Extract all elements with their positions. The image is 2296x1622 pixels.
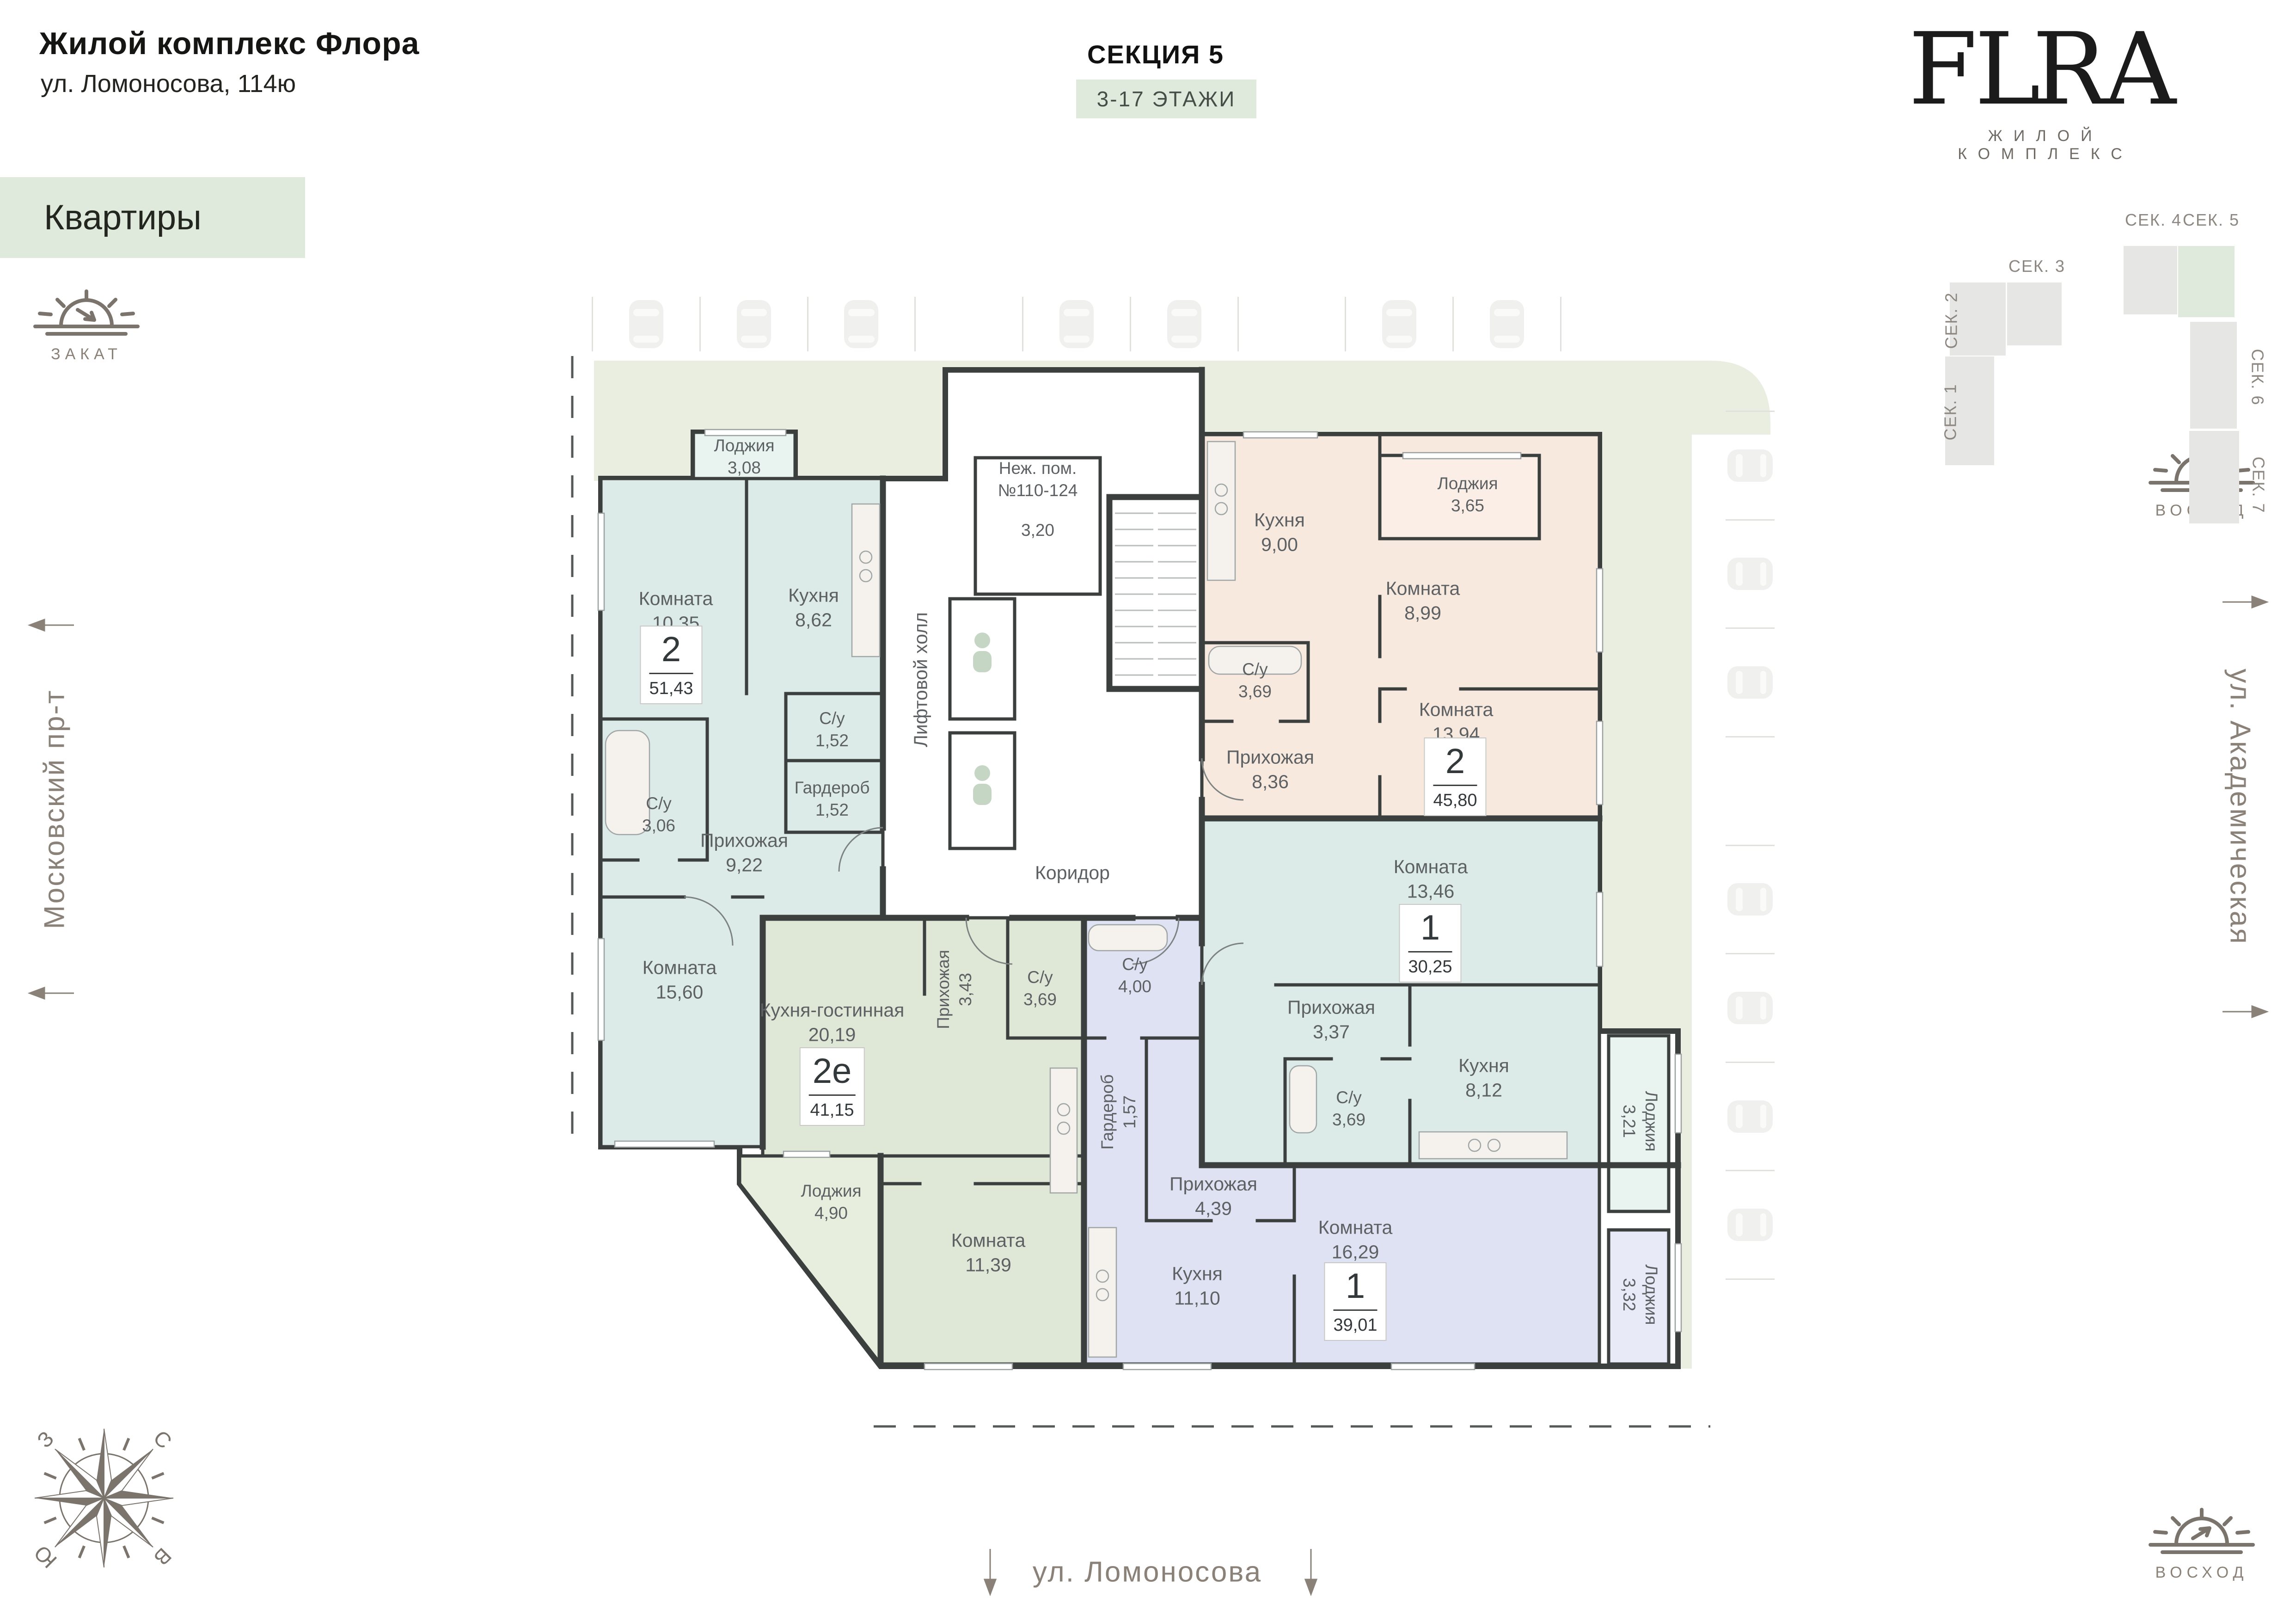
room-label-loggia: Лоджия3,65 <box>1437 473 1498 517</box>
car-icon <box>1382 300 1416 348</box>
room-label-loggia: Лоджия3,32 <box>1618 1264 1662 1325</box>
parking-slot <box>701 297 808 351</box>
room-label-loggia: Лоджия3,08 <box>714 435 774 479</box>
floorplan-page: Жилой комплекс Флора ул. Ломоносова, 114… <box>0 0 2296 1622</box>
parking-slot <box>1023 297 1131 351</box>
room-label-prihozhaya: Прихожая3,43 <box>932 950 977 1029</box>
parking-slot <box>808 297 916 351</box>
minimap-label-sec1: СЕК. 1 <box>1941 383 1960 440</box>
category-label: Квартиры <box>0 197 202 238</box>
section-title: СЕКЦИЯ 5 <box>1008 39 1304 69</box>
apartment-badge-2-4580[interactable]: 245,80 <box>1424 737 1486 816</box>
room-label-su: С/у1,52 <box>815 707 849 752</box>
page-address: ул. Ломоносова, 114ю <box>41 69 296 98</box>
room-label-su: С/у3,69 <box>1332 1087 1365 1131</box>
car-icon <box>1727 558 1773 590</box>
apartment-badge-1-3901[interactable]: 139,01 <box>1324 1262 1386 1341</box>
nonresidential-label: Неж. пом. №110-124 3,20 <box>998 457 1078 541</box>
room-label-komnata: Комната16,29 <box>1318 1216 1393 1265</box>
room-label-kuhnya: Кухня8,62 <box>788 584 839 633</box>
parking-slot <box>916 297 1023 351</box>
minimap-label-sec2: СЕК. 2 <box>1942 292 1961 349</box>
minimap-block-sec7[interactable] <box>2189 431 2239 523</box>
room-label-su: С/у3,69 <box>1238 658 1272 703</box>
car-icon <box>844 300 878 348</box>
room-label-prihozhaya: Прихожая8,36 <box>1226 745 1314 795</box>
parking-slot <box>1726 629 1775 737</box>
parking-slot <box>1726 411 1775 521</box>
room-label-kuhnya-gostinnaya: Кухня-гостинная20,19 <box>760 998 905 1048</box>
car-icon <box>1727 1209 1773 1241</box>
elevator-hall-label: Лифтовой холл <box>908 612 933 747</box>
sunset-indicator: ЗАКАТ <box>33 287 140 363</box>
parking-column-right <box>1726 411 1775 1280</box>
room-label-prihozhaya: Прихожая4,39 <box>1169 1172 1257 1222</box>
minimap-label-sec5: СЕК. 5 <box>2183 210 2240 230</box>
parking-row-top <box>592 297 1561 351</box>
parking-slot <box>1346 297 1454 351</box>
minimap-block-sec5-active[interactable] <box>2178 246 2235 317</box>
room-label-komnata: Комната11,39 <box>951 1229 1026 1278</box>
parking-slot <box>1239 297 1347 351</box>
room-label-kuhnya: Кухня8,12 <box>1458 1054 1509 1103</box>
car-icon <box>1490 300 1524 348</box>
page-title: Жилой комплекс Флора <box>39 25 419 61</box>
room-label-loggia: Лоджия3,21 <box>1618 1091 1662 1151</box>
compass-rose <box>35 1429 173 1567</box>
street-bottom: ул. Ломоносова <box>1033 1556 1262 1589</box>
floors-badge: 3-17 ЭТАЖИ <box>1076 80 1256 118</box>
car-icon <box>1727 992 1773 1024</box>
car-icon <box>1727 883 1773 915</box>
category-tab[interactable]: Квартиры <box>0 177 305 258</box>
sunrise-label-bottom: ВОСХОД <box>2149 1564 2255 1582</box>
street-left: Московский пр-т <box>38 689 71 929</box>
sunrise-indicator-bottom: ВОСХОД <box>2149 1505 2255 1582</box>
corridor-label: Коридор <box>1035 860 1110 885</box>
logo-text-right: RA <box>2032 19 2173 119</box>
room-label-garderob: Гардероб1,57 <box>1096 1075 1141 1150</box>
room-label-loggia: Лоджия4,90 <box>801 1180 861 1224</box>
car-icon <box>1727 666 1773 699</box>
parking-slot <box>1131 297 1239 351</box>
room-label-kuhnya: Кухня9,00 <box>1254 508 1305 558</box>
minimap-label-sec6: СЕК. 6 <box>2248 349 2267 405</box>
street-right: ул. Академическая <box>2224 669 2257 945</box>
sunset-label: ЗАКАТ <box>33 345 140 363</box>
parking-slot <box>1726 954 1775 1063</box>
room-label-garderob: Гардероб1,52 <box>795 777 870 821</box>
minimap-block-sec4[interactable] <box>2124 246 2177 314</box>
parking-slot <box>1726 737 1775 846</box>
apartment-badge-2-5143[interactable]: 251,43 <box>640 626 702 704</box>
parking-slot <box>1726 1063 1775 1172</box>
sunrise-icon <box>2149 1505 2255 1557</box>
brand-logo: FL RA ЖИЛОЙ КОМПЛЕКС <box>1935 19 2147 163</box>
car-icon <box>737 300 771 348</box>
floor-plan-canvas <box>0 0 2296 1622</box>
parking-slot <box>1726 1171 1775 1280</box>
car-icon <box>1059 300 1094 348</box>
car-icon <box>1727 1100 1773 1133</box>
room-label-komnata: Комната8,99 <box>1386 577 1460 626</box>
sunset-icon <box>33 287 140 338</box>
apartment-badge-2e-4115[interactable]: 2е41,15 <box>800 1047 865 1126</box>
parking-slot <box>1454 297 1561 351</box>
room-label-prihozhaya: Прихожая3,37 <box>1287 995 1375 1045</box>
room-label-su: С/у3,69 <box>1023 966 1057 1011</box>
parking-slot <box>592 297 701 351</box>
room-label-komnata: Комната13,46 <box>1394 855 1468 904</box>
logo-text-left: FL <box>1908 19 2038 119</box>
parking-slot <box>1726 521 1775 629</box>
room-label-komnata: Комната15,60 <box>643 956 717 1005</box>
minimap-label-sec7: СЕК. 7 <box>2249 456 2268 513</box>
minimap-label-sec3: СЕК. 3 <box>2008 257 2065 276</box>
room-label-su: С/у3,06 <box>642 793 675 837</box>
room-label-su: С/у4,00 <box>1118 953 1151 998</box>
room-label-kuhnya: Кухня11,10 <box>1172 1262 1223 1311</box>
logo-tagline: ЖИЛОЙ КОМПЛЕКС <box>1935 127 2147 163</box>
minimap-label-sec4: СЕК. 4 <box>2125 210 2182 230</box>
room-label-prihozhaya: Прихожая9,22 <box>700 829 788 878</box>
car-icon <box>1167 300 1201 348</box>
apartment-badge-1-3025[interactable]: 130,25 <box>1399 904 1461 983</box>
car-icon <box>1727 449 1773 482</box>
car-icon <box>629 300 663 348</box>
minimap-block-sec3[interactable] <box>2007 283 2062 345</box>
minimap-block-sec6[interactable] <box>2190 322 2237 429</box>
parking-slot <box>1726 846 1775 955</box>
